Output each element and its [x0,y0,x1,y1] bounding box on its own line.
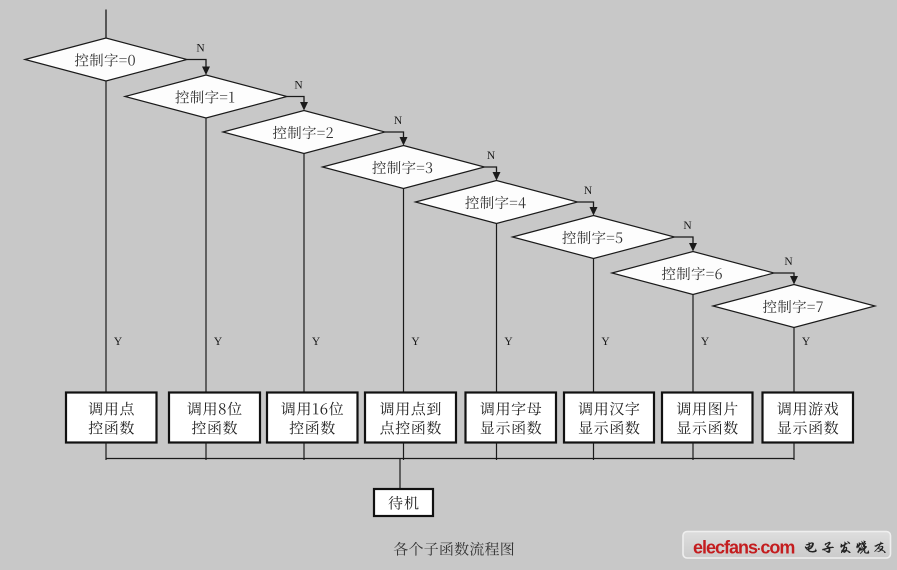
svg-text:Y: Y [802,336,811,348]
svg-text:Y: Y [601,336,610,348]
svg-text:Y: Y [411,336,420,348]
svg-text:N: N [294,80,303,92]
svg-text:Y: Y [312,336,321,348]
svg-text:N: N [196,43,205,55]
svg-text:N: N [584,185,593,197]
svg-text:Y: Y [701,336,710,348]
svg-text:Y: Y [214,336,223,348]
svg-text:N: N [487,150,496,162]
svg-text:N: N [784,256,793,268]
svg-text:Y: Y [114,336,123,348]
svg-text:N: N [683,220,692,232]
svg-text:N: N [394,115,403,127]
svg-text:Y: Y [504,336,513,348]
svg-text:elecfans·com: elecfans·com [693,538,794,558]
